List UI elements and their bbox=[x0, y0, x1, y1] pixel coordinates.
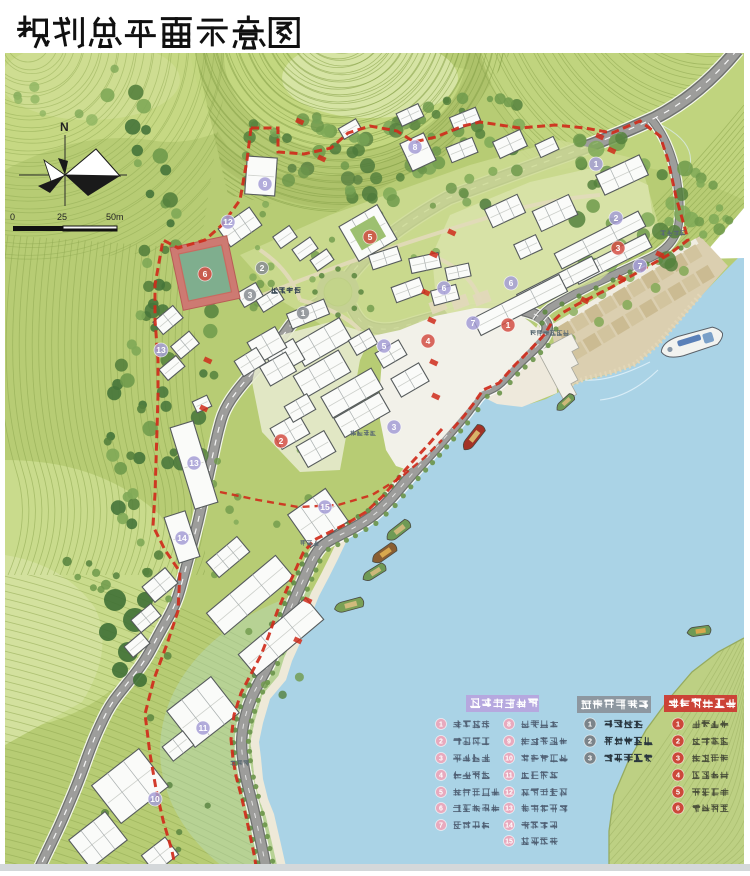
svg-text:3: 3 bbox=[439, 756, 443, 763]
svg-text:2: 2 bbox=[279, 436, 284, 446]
svg-text:8: 8 bbox=[507, 722, 511, 729]
svg-text:1: 1 bbox=[676, 720, 680, 729]
svg-text:13: 13 bbox=[189, 458, 199, 468]
svg-text:7: 7 bbox=[439, 823, 443, 830]
svg-text:5: 5 bbox=[439, 790, 443, 797]
svg-text:15: 15 bbox=[505, 839, 513, 846]
svg-text:2: 2 bbox=[614, 213, 619, 223]
svg-text:11: 11 bbox=[505, 773, 513, 780]
svg-text:2: 2 bbox=[676, 737, 680, 746]
svg-text:1: 1 bbox=[588, 720, 592, 729]
svg-text:6: 6 bbox=[439, 806, 443, 813]
svg-text:8: 8 bbox=[413, 142, 418, 152]
svg-text:11: 11 bbox=[199, 723, 208, 733]
svg-text:2: 2 bbox=[260, 263, 265, 273]
svg-text:4: 4 bbox=[426, 336, 431, 346]
svg-text:1: 1 bbox=[301, 308, 306, 318]
svg-text:N: N bbox=[60, 120, 69, 134]
svg-text:1: 1 bbox=[439, 722, 443, 729]
svg-text:1: 1 bbox=[594, 159, 599, 169]
svg-text:5: 5 bbox=[676, 788, 680, 797]
svg-text:2: 2 bbox=[588, 737, 592, 746]
svg-text:3: 3 bbox=[616, 243, 621, 253]
svg-text:3: 3 bbox=[676, 754, 680, 763]
svg-text:14: 14 bbox=[505, 823, 513, 830]
svg-text:2: 2 bbox=[439, 739, 443, 746]
svg-text:7: 7 bbox=[638, 261, 643, 271]
svg-text:10: 10 bbox=[505, 756, 513, 763]
svg-text:6: 6 bbox=[203, 269, 208, 279]
svg-text:12: 12 bbox=[223, 217, 233, 227]
svg-text:5: 5 bbox=[382, 341, 387, 351]
svg-text:0: 0 bbox=[10, 212, 15, 222]
svg-text:4: 4 bbox=[439, 773, 443, 780]
svg-text:3: 3 bbox=[392, 422, 397, 432]
svg-text:7: 7 bbox=[471, 318, 476, 328]
svg-text:10: 10 bbox=[150, 794, 160, 804]
svg-text:1: 1 bbox=[506, 320, 511, 330]
svg-text:3: 3 bbox=[588, 754, 592, 763]
svg-text:6: 6 bbox=[676, 804, 680, 813]
svg-text:5: 5 bbox=[368, 232, 373, 242]
svg-text:3: 3 bbox=[248, 290, 253, 300]
svg-text:50m: 50m bbox=[106, 212, 124, 222]
svg-text:6: 6 bbox=[509, 278, 514, 288]
svg-text:15: 15 bbox=[320, 502, 330, 512]
svg-text:25: 25 bbox=[57, 212, 67, 222]
svg-text:13: 13 bbox=[505, 806, 513, 813]
svg-text:9: 9 bbox=[507, 739, 511, 746]
svg-text:12: 12 bbox=[505, 790, 513, 797]
svg-text:13: 13 bbox=[156, 345, 166, 355]
svg-text:6: 6 bbox=[442, 283, 447, 293]
svg-text:9: 9 bbox=[263, 179, 268, 189]
svg-text:14: 14 bbox=[177, 533, 187, 543]
